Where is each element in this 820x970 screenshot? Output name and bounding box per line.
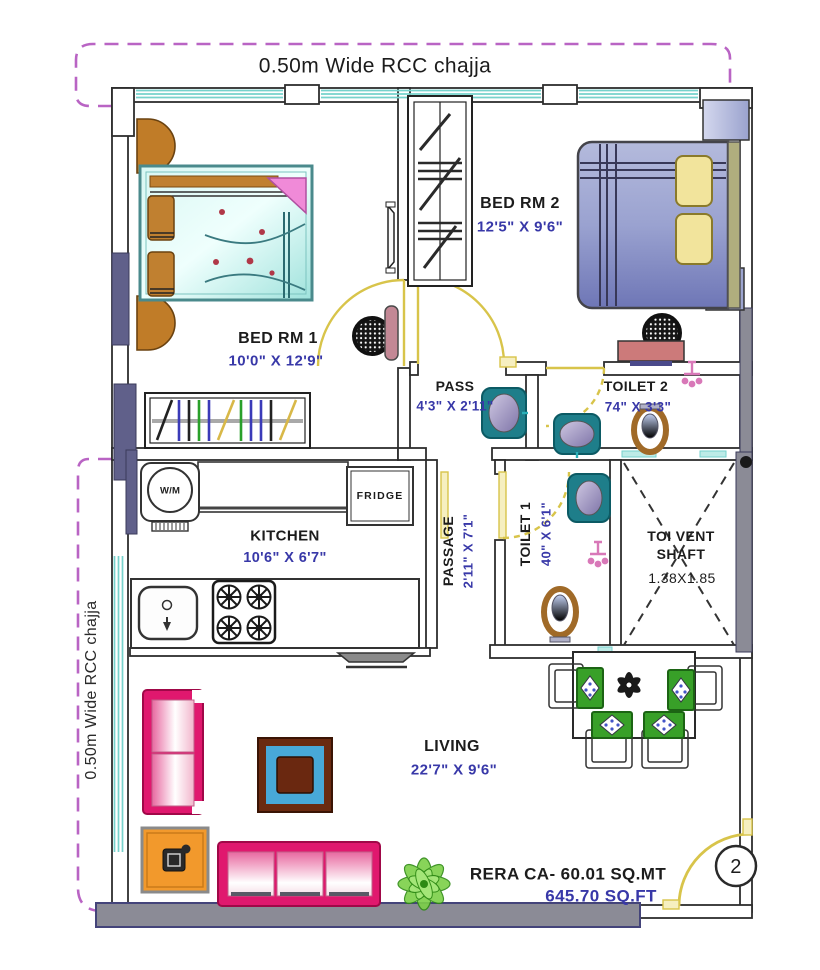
living-dims: 22'7" X 9'6" xyxy=(411,763,497,778)
chajja-left-label: 0.50m Wide RCC chajja xyxy=(84,600,100,779)
wc-toilet1 xyxy=(544,589,576,642)
bed-2 xyxy=(578,142,740,308)
column-marker-dot xyxy=(740,456,752,468)
sofa-2seat xyxy=(143,690,204,814)
vent-shaft-label-line2: SHAFT xyxy=(657,547,706,561)
coffee-table xyxy=(258,738,332,812)
fridge-label: FRIDGE xyxy=(357,491,404,502)
shower-toilet1 xyxy=(589,542,607,566)
toilet-2-label: TOILET 2 xyxy=(604,379,668,393)
chajja-top-label: 0.50m Wide RCC chajja xyxy=(259,56,491,77)
bed-rm-1-label: BED RM 1 xyxy=(238,331,318,347)
pass-dims: 4'3" X 2'11" xyxy=(416,399,493,413)
bed-rm-2-dims: 12'5" X 9'6" xyxy=(477,220,563,235)
toilet-2-dims: 74" X 3'3" xyxy=(605,400,672,414)
passage-label: PASSAGE xyxy=(441,516,455,586)
floor-plan: 0.50m Wide RCC chajja 0.50m Wide RCC cha… xyxy=(0,0,820,970)
washbasin-toilet1 xyxy=(568,474,610,522)
vent-shaft-dims: 1.38X1.85 xyxy=(648,571,715,585)
toilet-1-dims: 40" X 6'1" xyxy=(540,502,553,566)
bed-rm-2-label: BED RM 2 xyxy=(480,196,560,212)
kitchen-counter-top xyxy=(198,462,348,512)
living-label: LIVING xyxy=(424,739,480,755)
plant xyxy=(398,858,450,910)
vent-shaft-label-line1: TOI VENT xyxy=(647,529,715,543)
floor-plan-drawing xyxy=(0,0,820,970)
washing-machine xyxy=(141,463,199,531)
kitchen-dims: 10'6" X 6'7" xyxy=(243,551,327,566)
tv-living xyxy=(338,653,414,667)
wardrobe-bed1 xyxy=(145,393,310,448)
pass-label: PASS xyxy=(436,379,475,393)
washbasin-toilet2 xyxy=(554,414,600,458)
bed-1 xyxy=(140,166,312,300)
wall-shelf-bed1 xyxy=(385,306,398,360)
sofa-3seat xyxy=(218,842,380,906)
wardrobe-bed2 xyxy=(408,96,472,286)
side-table xyxy=(142,828,208,892)
tv-unit-bed1 xyxy=(386,202,395,273)
toilet-1-label: TOILET 1 xyxy=(518,502,532,566)
unit-number-label: 2 xyxy=(730,857,742,877)
kitchen-sink xyxy=(139,587,197,639)
dining-set xyxy=(549,652,722,768)
passage-dims: 2'11" X 7'1" xyxy=(462,514,475,589)
bed-rm-1-dims: 10'0" X 12'9" xyxy=(229,354,324,369)
washing-machine-label: W/M xyxy=(160,486,180,496)
carpet-area-sqft-label: 645.70 SQ.FT xyxy=(545,888,657,905)
rera-carpet-area-label: RERA CA- 60.01 SQ.MT xyxy=(470,866,666,883)
kitchen-label: KITCHEN xyxy=(250,529,319,544)
